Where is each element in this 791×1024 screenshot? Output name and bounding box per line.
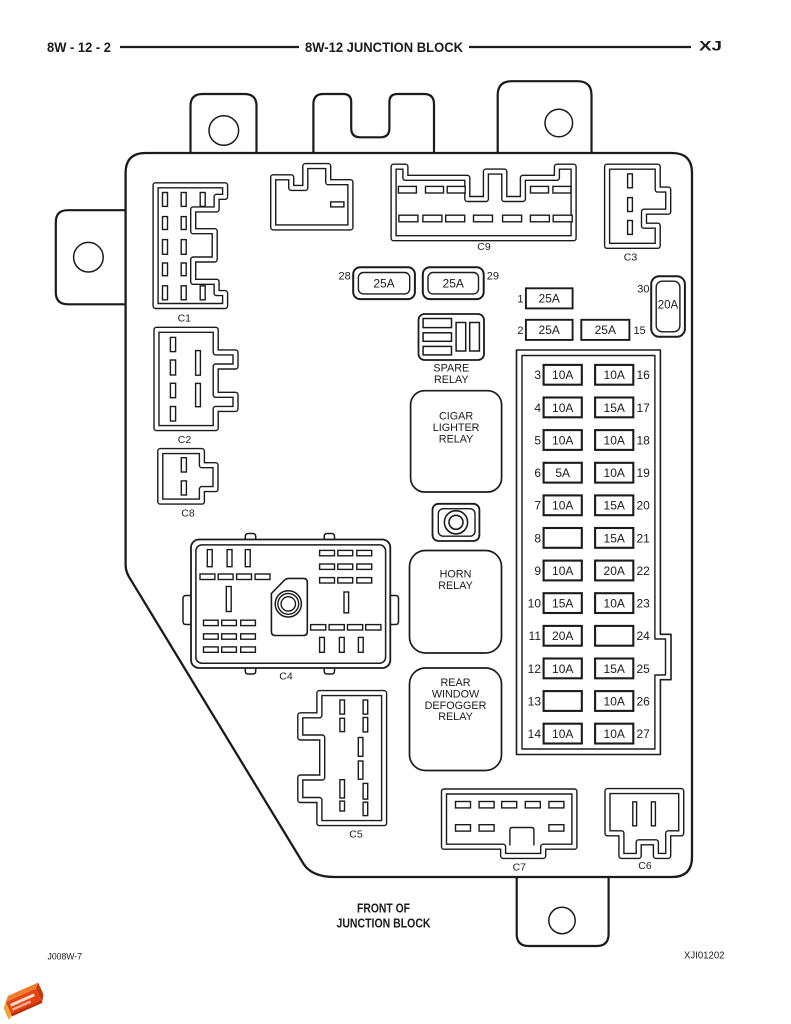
svg-text:29: 29 [487, 271, 499, 283]
svg-text:10A: 10A [552, 401, 573, 415]
svg-text:28: 28 [339, 271, 351, 283]
svg-text:3: 3 [534, 368, 541, 382]
svg-text:C6: C6 [638, 860, 652, 872]
svg-text:C3: C3 [624, 252, 638, 264]
svg-text:15A: 15A [604, 499, 625, 513]
svg-text:22: 22 [637, 564, 651, 578]
svg-text:10A: 10A [552, 727, 573, 741]
svg-text:9: 9 [534, 564, 541, 578]
svg-text:WINDOW: WINDOW [432, 688, 480, 700]
svg-text:25: 25 [637, 662, 651, 676]
svg-text:10A: 10A [552, 433, 573, 447]
svg-text:XJI01202: XJI01202 [684, 951, 725, 962]
svg-text:REAR: REAR [441, 677, 471, 689]
svg-text:10A: 10A [552, 662, 573, 676]
svg-text:25A: 25A [539, 323, 560, 337]
svg-text:19: 19 [637, 466, 651, 480]
svg-text:23: 23 [637, 597, 651, 611]
svg-text:15: 15 [634, 325, 646, 337]
svg-text:2: 2 [517, 325, 523, 337]
svg-text:CIGAR: CIGAR [439, 411, 473, 423]
svg-text:C1: C1 [178, 313, 192, 325]
svg-text:C4: C4 [279, 671, 293, 683]
svg-text:10A: 10A [552, 499, 573, 513]
svg-text:13: 13 [528, 694, 542, 708]
svg-text:10A: 10A [552, 564, 573, 578]
svg-text:25A: 25A [443, 277, 464, 291]
svg-text:8W - 12 - 2: 8W - 12 - 2 [47, 39, 111, 55]
svg-text:5: 5 [534, 433, 541, 447]
svg-text:HORN: HORN [440, 569, 472, 581]
svg-text:14: 14 [528, 727, 542, 741]
svg-text:XJ: XJ [699, 39, 722, 54]
svg-text:17: 17 [637, 401, 651, 415]
svg-text:C8: C8 [181, 508, 195, 520]
svg-text:RELAY: RELAY [438, 711, 473, 723]
svg-text:20: 20 [637, 499, 651, 513]
svg-text:C9: C9 [477, 241, 491, 253]
svg-text:10A: 10A [604, 368, 625, 382]
svg-text:20A: 20A [604, 564, 625, 578]
svg-text:FRONT OF: FRONT OF [357, 902, 410, 916]
svg-text:25A: 25A [595, 323, 616, 337]
svg-text:10A: 10A [552, 368, 573, 382]
svg-text:20A: 20A [658, 300, 679, 312]
svg-text:10A: 10A [604, 727, 625, 741]
svg-text:11: 11 [529, 629, 542, 643]
svg-text:1: 1 [517, 294, 523, 306]
svg-text:20A: 20A [552, 629, 573, 643]
svg-text:SPARE: SPARE [433, 363, 469, 375]
svg-text:RELAY: RELAY [434, 374, 469, 386]
svg-text:C7: C7 [513, 862, 527, 874]
svg-text:26: 26 [637, 694, 651, 708]
svg-text:RELAY: RELAY [439, 433, 474, 445]
svg-text:10: 10 [528, 597, 542, 611]
svg-text:27: 27 [637, 727, 651, 741]
svg-text:6: 6 [534, 466, 541, 480]
svg-text:10A: 10A [604, 694, 625, 708]
svg-text:7: 7 [534, 499, 541, 513]
svg-text:J008W-7: J008W-7 [48, 952, 83, 963]
svg-text:18: 18 [637, 433, 651, 447]
svg-text:15A: 15A [604, 662, 625, 676]
svg-text:C5: C5 [349, 829, 363, 841]
svg-text:JUNCTION BLOCK: JUNCTION BLOCK [337, 917, 431, 931]
svg-text:8W-12 JUNCTION BLOCK: 8W-12 JUNCTION BLOCK [305, 39, 463, 55]
svg-text:RELAY: RELAY [438, 580, 473, 592]
svg-text:24: 24 [637, 629, 651, 643]
svg-text:15A: 15A [552, 597, 573, 611]
svg-text:15A: 15A [604, 531, 625, 545]
svg-text:16: 16 [637, 368, 651, 382]
svg-text:C2: C2 [178, 434, 192, 446]
svg-text:25A: 25A [373, 277, 394, 291]
svg-text:21: 21 [637, 531, 651, 545]
svg-text:8: 8 [534, 531, 541, 545]
svg-text:LIGHTER: LIGHTER [433, 422, 480, 434]
svg-text:15A: 15A [604, 401, 625, 415]
svg-text:30: 30 [637, 284, 649, 296]
svg-text:12: 12 [528, 662, 542, 676]
svg-text:10A: 10A [604, 466, 625, 480]
svg-text:25A: 25A [539, 292, 560, 306]
svg-text:5A: 5A [555, 466, 570, 480]
svg-text:DEFOGGER: DEFOGGER [425, 700, 487, 712]
svg-text:10A: 10A [604, 433, 625, 447]
svg-text:10A: 10A [604, 597, 625, 611]
svg-text:4: 4 [534, 401, 541, 415]
